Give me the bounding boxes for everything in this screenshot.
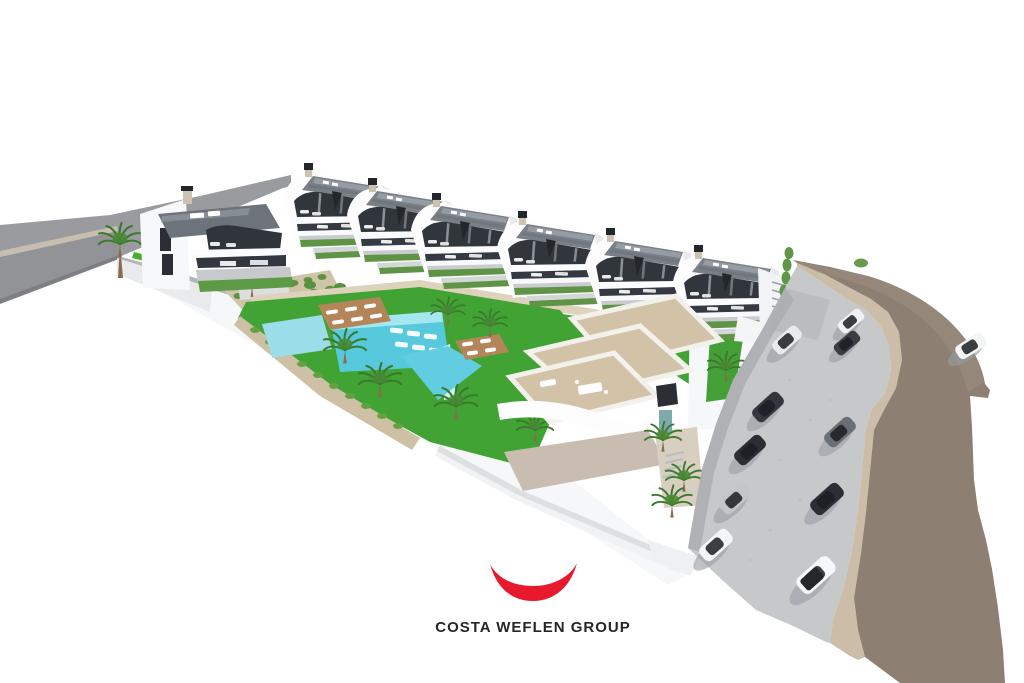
svg-text:COSTA WEFLEN GROUP: COSTA WEFLEN GROUP xyxy=(435,619,631,636)
